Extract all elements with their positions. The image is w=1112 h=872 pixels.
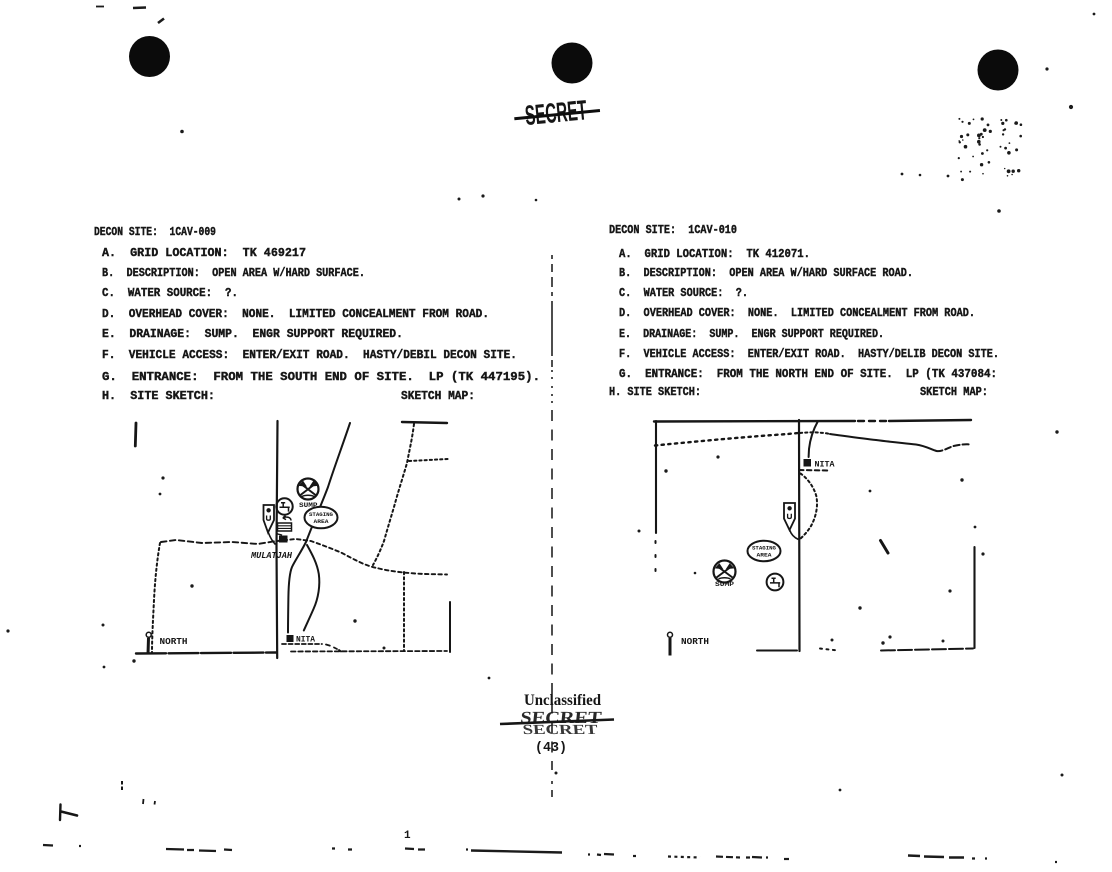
svg-text:Unclassified: Unclassified	[524, 692, 601, 709]
svg-text:NITA: NITA	[815, 461, 835, 470]
svg-text:DECON SITE: 1CAV-009: DECON SITE: 1CAV-009	[94, 226, 216, 239]
svg-text:(43): (43)	[535, 741, 567, 756]
svg-text:1: 1	[404, 830, 411, 842]
svg-text:STAGING: STAGING	[309, 512, 333, 518]
svg-text:NITA: NITA	[296, 636, 315, 645]
svg-text:B. DESCRIPTION: OPEN AREA W/: B. DESCRIPTION: OPEN AREA W/HARD SURFACE…	[102, 267, 365, 280]
svg-text:MULATJAH: MULATJAH	[250, 550, 292, 561]
svg-text:F. VEHICLE ACCESS: ENTER/EXI: F. VEHICLE ACCESS: ENTER/EXIT ROAD. HAST…	[102, 349, 517, 362]
svg-text:H. SITE SKETCH:: H. SITE SKETCH:	[102, 390, 215, 403]
svg-text:D. OVERHEAD COVER: NONE. LI: D. OVERHEAD COVER: NONE. LIMITED CONCEAL…	[619, 307, 975, 320]
svg-text:C. WATER SOURCE: ?.: C. WATER SOURCE: ?.	[619, 287, 748, 300]
svg-text:STAGING: STAGING	[752, 546, 776, 552]
svg-text:D. OVERHEAD COVER: NONE. LI: D. OVERHEAD COVER: NONE. LIMITED CONCEAL…	[102, 308, 489, 321]
svg-text:G. ENTRANCE: FROM THE SOUTH: G. ENTRANCE: FROM THE SOUTH END OF SITE.…	[102, 371, 540, 384]
svg-text:NORTH: NORTH	[160, 636, 188, 647]
svg-text:SUMP: SUMP	[715, 581, 734, 588]
svg-text:B. DESCRIPTION: OPEN AREA W/: B. DESCRIPTION: OPEN AREA W/HARD SURFACE…	[619, 267, 913, 280]
svg-text:SECRET: SECRET	[522, 723, 599, 738]
svg-text:G. ENTRANCE: FROM THE NORTH: G. ENTRANCE: FROM THE NORTH END OF SITE.…	[619, 368, 997, 381]
svg-text:SKETCH MAP:: SKETCH MAP:	[401, 390, 475, 403]
svg-text:A. GRID LOCATION: TK 412071.: A. GRID LOCATION: TK 412071.	[619, 248, 810, 261]
svg-text:DECON SITE: 1CAV-010: DECON SITE: 1CAV-010	[609, 224, 737, 237]
svg-text:F. VEHICLE ACCESS: ENTER/EXI: F. VEHICLE ACCESS: ENTER/EXIT ROAD. HAST…	[619, 348, 999, 361]
svg-text:A. GRID LOCATION: TK 469217: A. GRID LOCATION: TK 469217	[102, 247, 306, 260]
svg-text:E. DRAINAGE: SUMP. ENGR SUP: E. DRAINAGE: SUMP. ENGR SUPPORT REQUIRED…	[619, 328, 884, 341]
svg-text:NORTH: NORTH	[681, 636, 709, 647]
svg-text:SKETCH MAP:: SKETCH MAP:	[920, 386, 988, 399]
svg-text:AREA: AREA	[757, 553, 773, 559]
svg-text:AREA: AREA	[314, 519, 330, 525]
svg-text:E. DRAINAGE: SUMP. ENGR SUP: E. DRAINAGE: SUMP. ENGR SUPPORT REQUIRED…	[102, 328, 403, 341]
svg-text:H. SITE SKETCH:: H. SITE SKETCH:	[609, 386, 701, 399]
svg-text:C. WATER SOURCE: ?.: C. WATER SOURCE: ?.	[102, 287, 238, 300]
